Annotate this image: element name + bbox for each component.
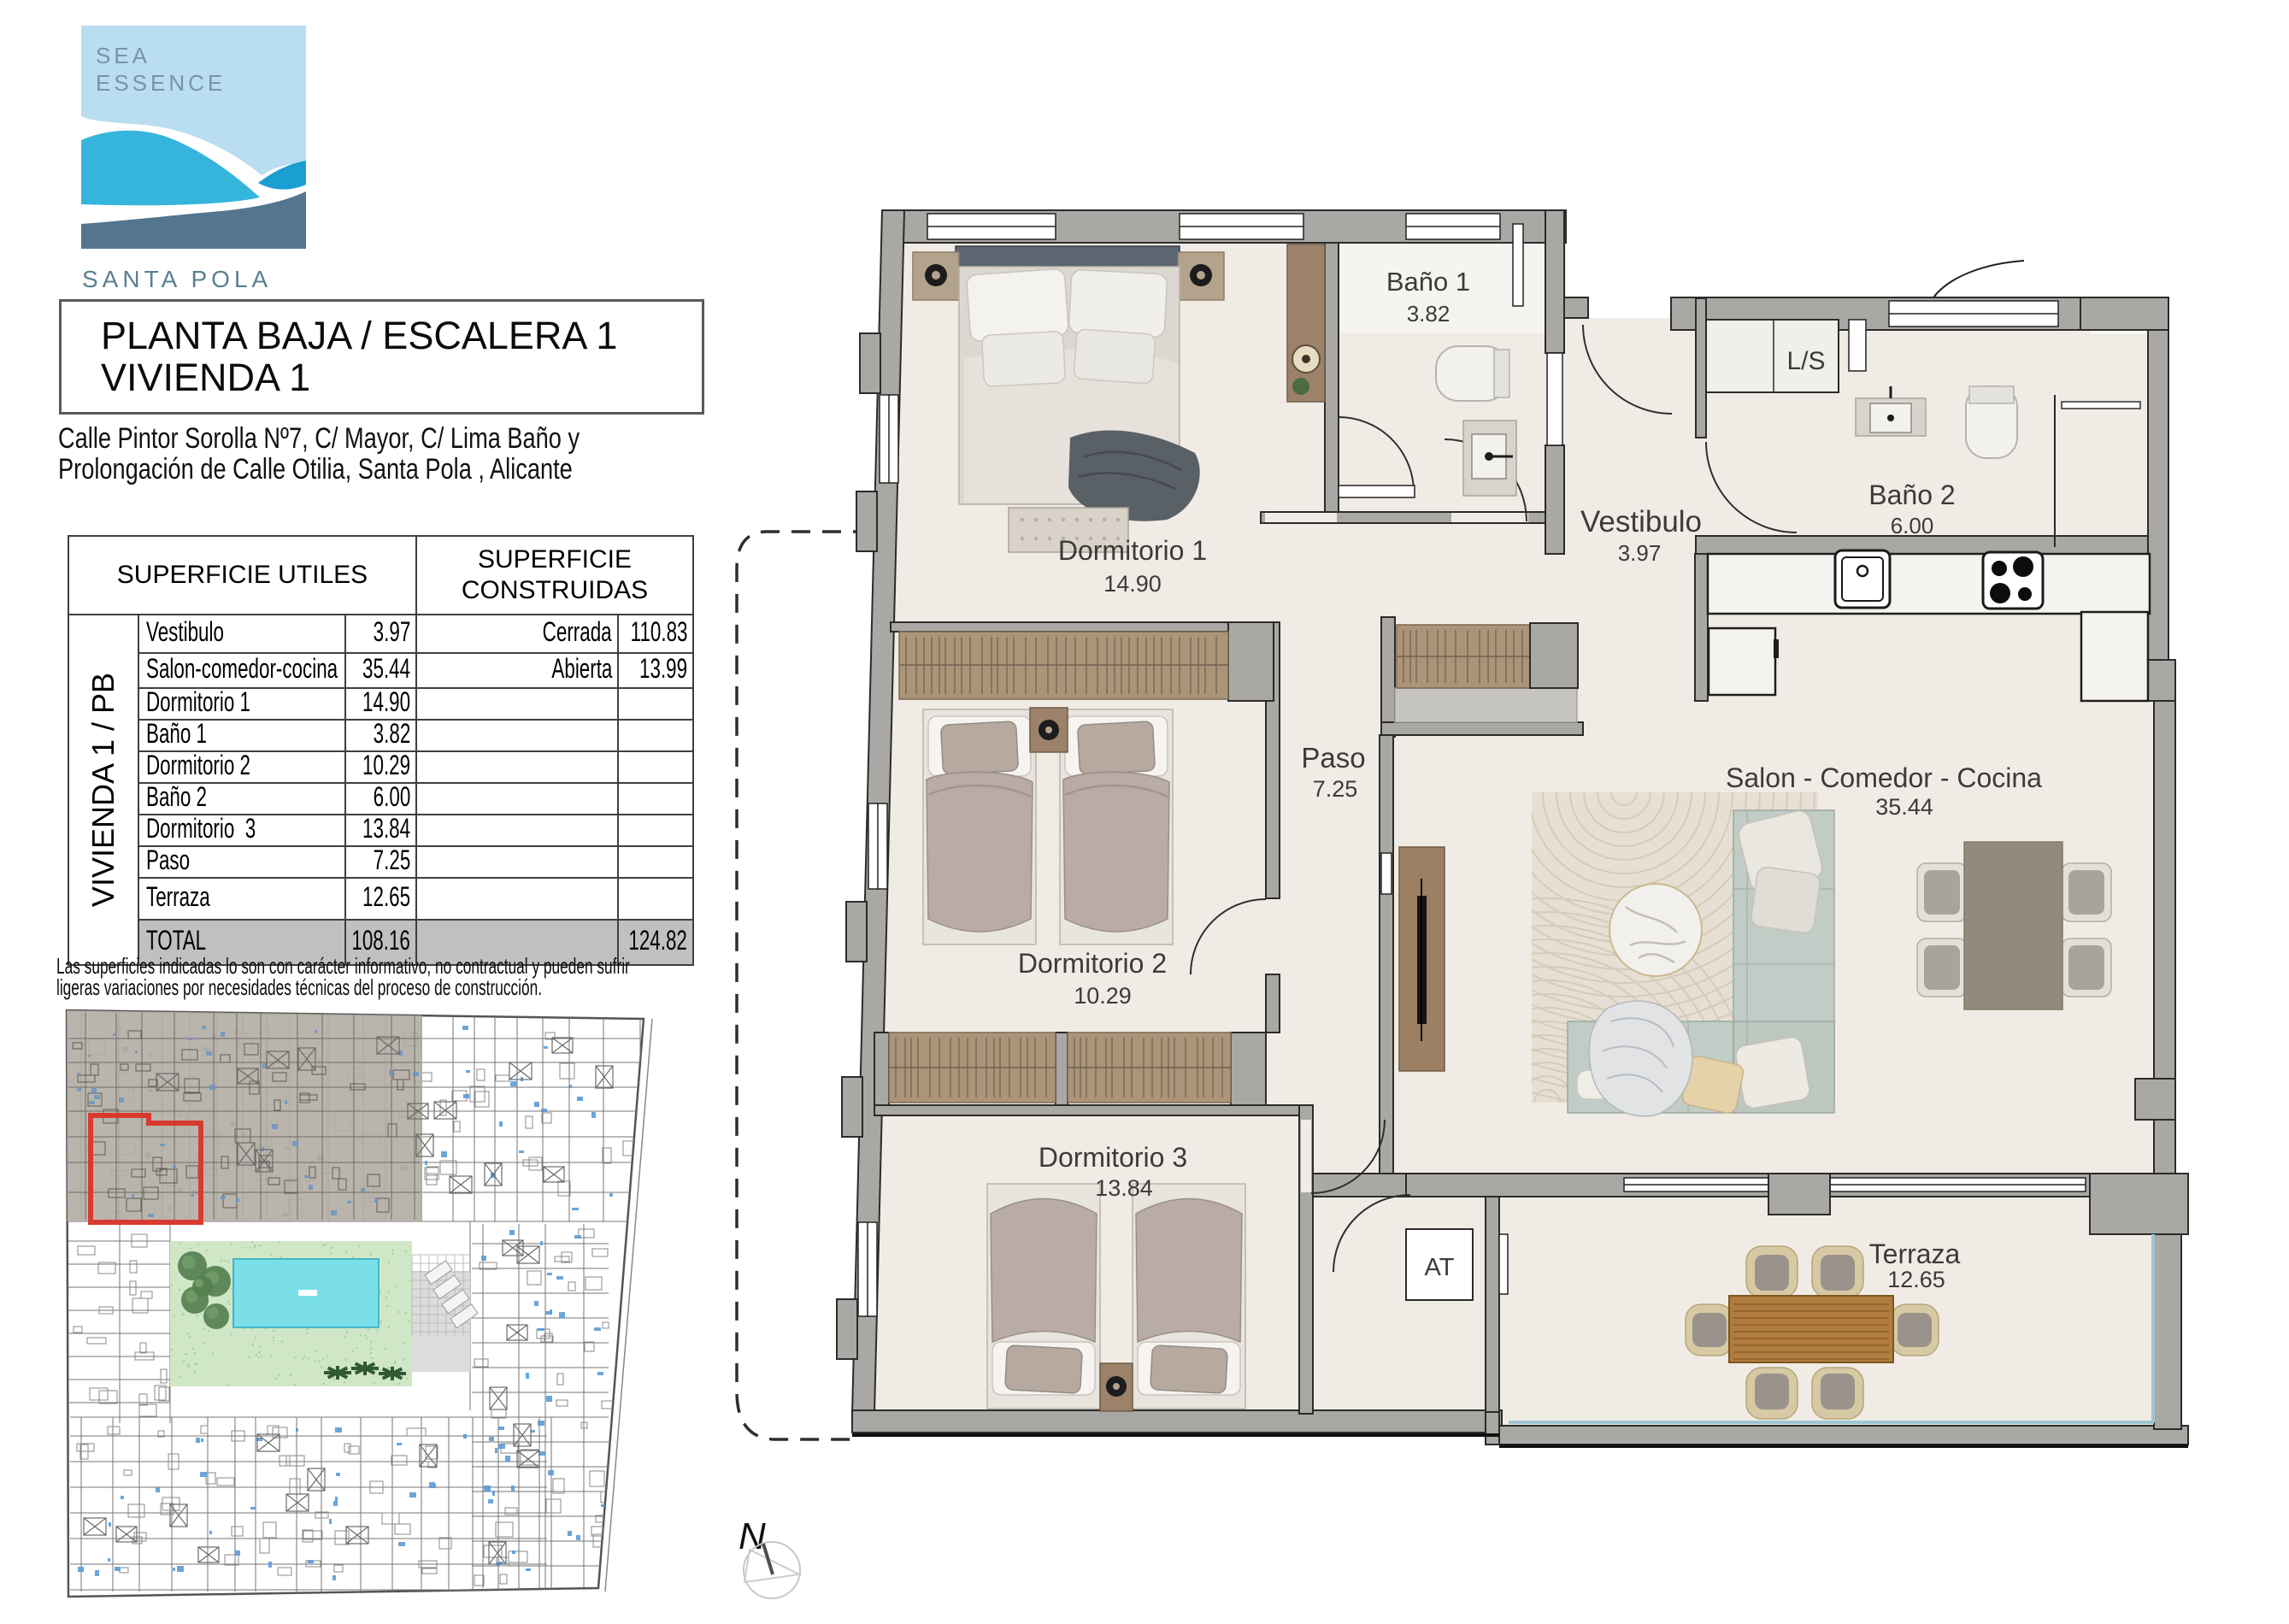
svg-text:SEA: SEA bbox=[96, 43, 150, 68]
svg-text:13.84: 13.84 bbox=[1095, 1175, 1153, 1201]
svg-text:7.25: 7.25 bbox=[1313, 776, 1358, 802]
svg-text:AT: AT bbox=[1425, 1254, 1455, 1281]
svg-text:Baño 2: Baño 2 bbox=[1868, 480, 1955, 510]
svg-text:SANTA POLA: SANTA POLA bbox=[82, 266, 272, 292]
svg-text:12.65: 12.65 bbox=[1887, 1267, 1945, 1292]
svg-text:10.29: 10.29 bbox=[1074, 983, 1132, 1009]
svg-text:Dormitorio 1: Dormitorio 1 bbox=[1058, 535, 1207, 566]
svg-text:Paso: Paso bbox=[1301, 742, 1365, 774]
svg-text:Baño 1: Baño 1 bbox=[1386, 267, 1470, 297]
svg-text:L/S: L/S bbox=[1786, 347, 1825, 375]
svg-text:6.00: 6.00 bbox=[1891, 513, 1934, 538]
svg-text:35.44: 35.44 bbox=[1875, 794, 1933, 820]
svg-text:14.90: 14.90 bbox=[1103, 571, 1162, 597]
svg-text:Dormitorio 3: Dormitorio 3 bbox=[1039, 1142, 1187, 1173]
svg-text:Vestibulo: Vestibulo bbox=[1580, 505, 1702, 538]
svg-text:Terraza: Terraza bbox=[1869, 1239, 1961, 1269]
svg-text:ESSENCE: ESSENCE bbox=[96, 70, 226, 96]
svg-text:3.82: 3.82 bbox=[1407, 301, 1450, 327]
svg-text:Salon - Comedor - Cocina: Salon - Comedor - Cocina bbox=[1726, 762, 2042, 793]
svg-text:3.97: 3.97 bbox=[1618, 540, 1662, 566]
